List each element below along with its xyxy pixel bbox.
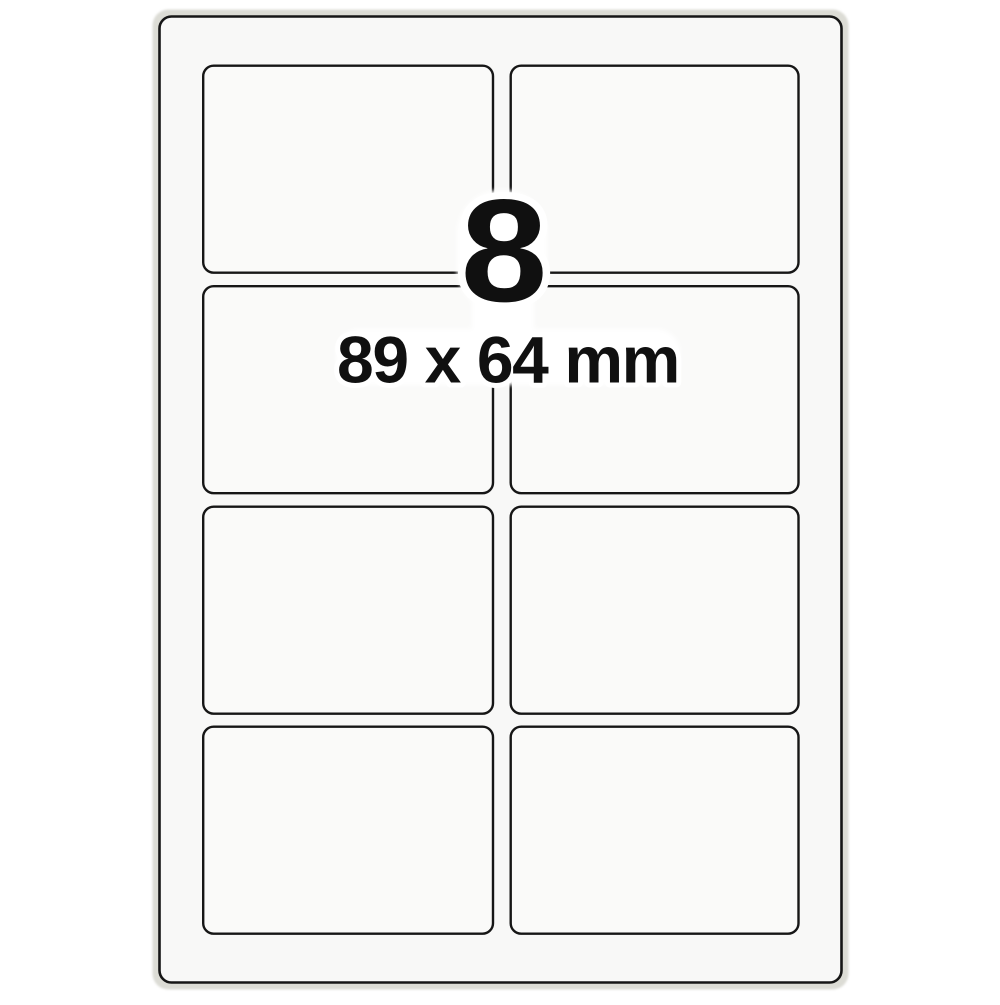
svg-text:89 x 64 mm: 89 x 64 mm: [337, 323, 679, 397]
svg-text:8: 8: [461, 170, 548, 333]
